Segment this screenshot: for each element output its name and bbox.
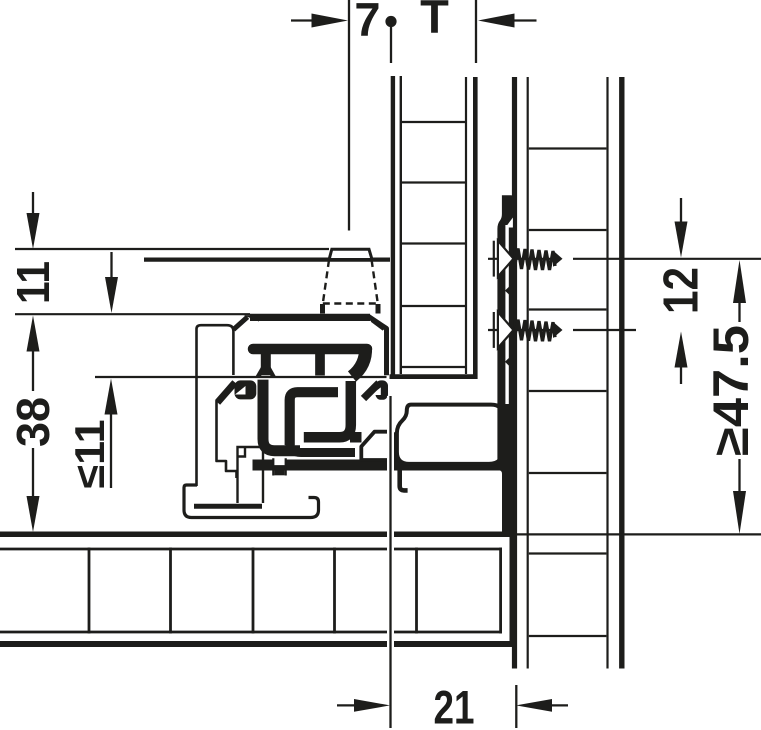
svg-text:7: 7 <box>354 0 380 46</box>
svg-text:≤11: ≤11 <box>66 420 113 489</box>
svg-text:21: 21 <box>434 681 475 730</box>
svg-text:≥47.5: ≥47.5 <box>703 325 759 456</box>
svg-text:12: 12 <box>655 267 709 314</box>
svg-text:38: 38 <box>7 397 59 447</box>
svg-text:T: T <box>420 0 449 43</box>
svg-text:11: 11 <box>7 261 59 304</box>
